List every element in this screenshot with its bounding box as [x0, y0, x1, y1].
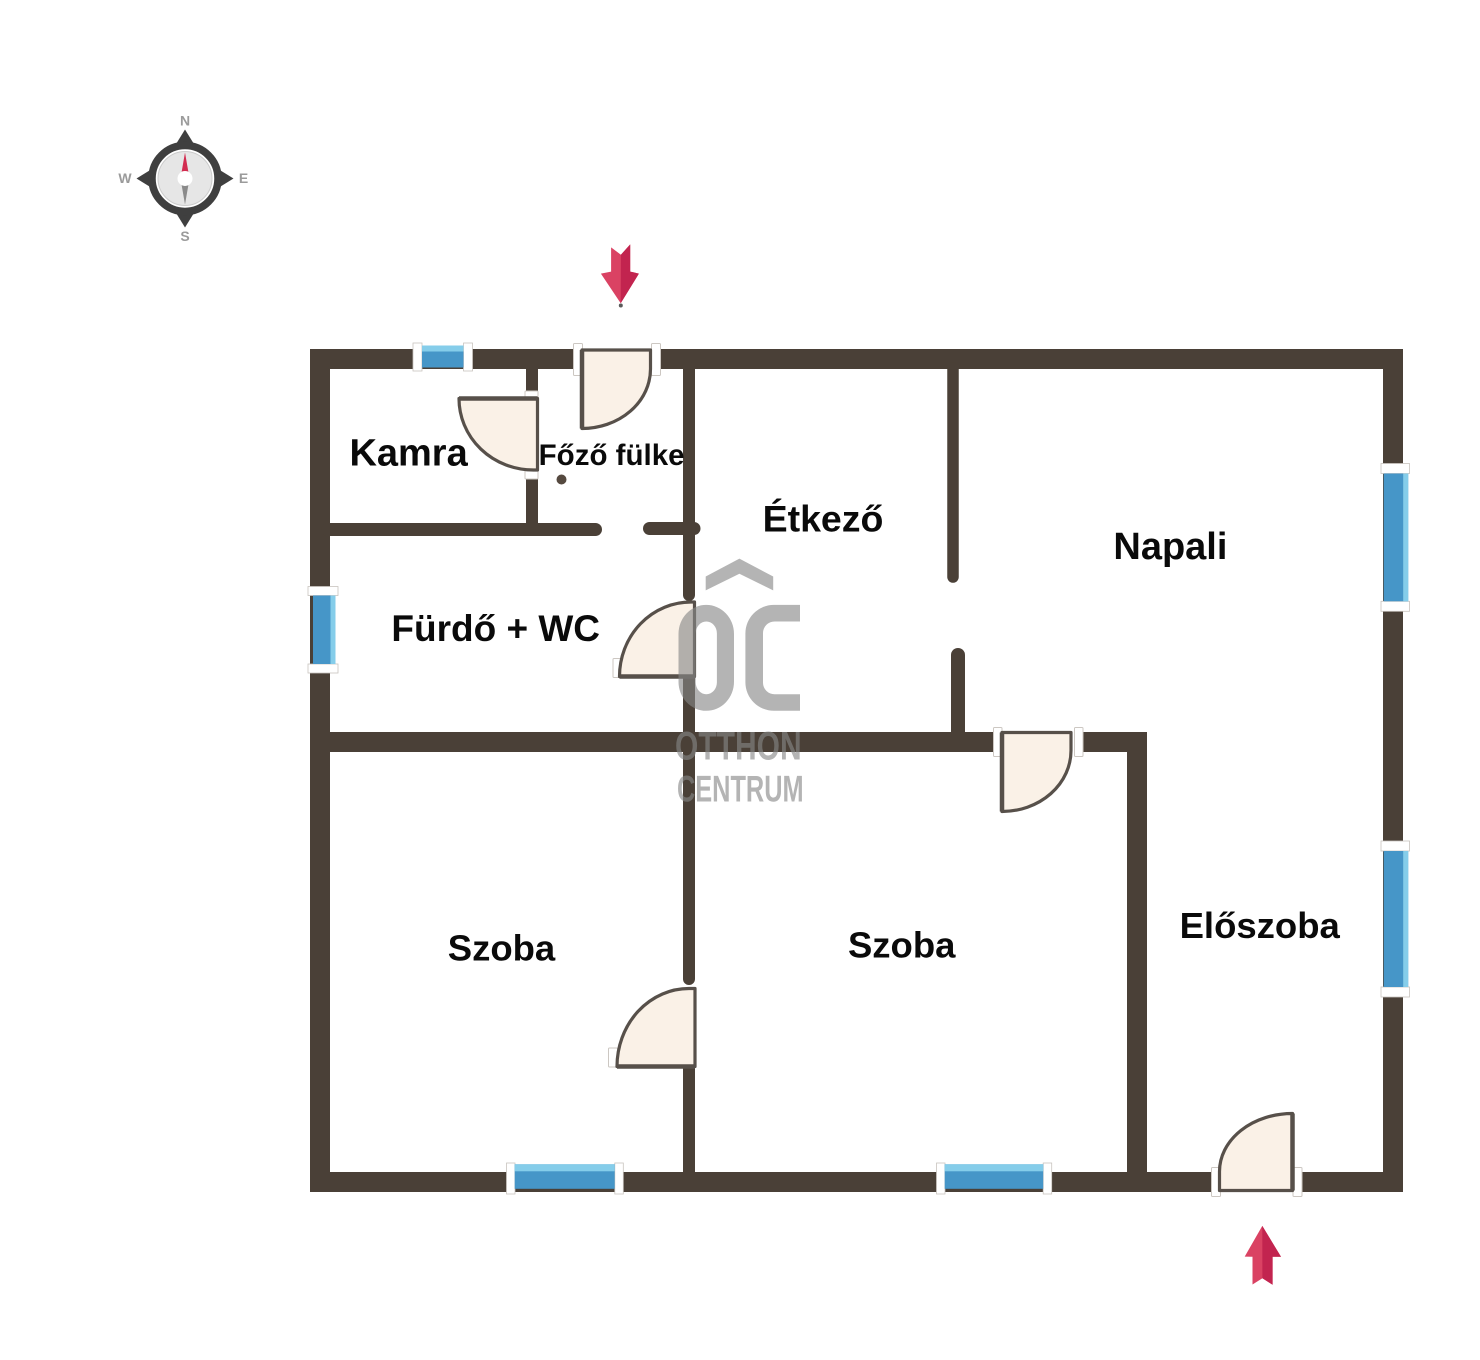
svg-text:Napali: Napali: [1113, 526, 1227, 568]
svg-text:Főző fülke: Főző fülke: [539, 439, 685, 472]
svg-text:Kamra: Kamra: [349, 433, 468, 475]
svg-text:Szoba: Szoba: [448, 928, 556, 969]
svg-text:Fürdő + WC: Fürdő + WC: [391, 608, 600, 649]
svg-text:S: S: [180, 228, 189, 244]
svg-text:W: W: [118, 170, 132, 186]
svg-text:Előszoba: Előszoba: [1180, 905, 1341, 946]
svg-text:E: E: [239, 170, 248, 186]
svg-text:Étkező: Étkező: [763, 498, 884, 540]
svg-text:CENTRUM: CENTRUM: [677, 768, 804, 810]
svg-text:Szoba: Szoba: [848, 925, 956, 966]
svg-text:N: N: [180, 113, 190, 129]
svg-text:OTTHON: OTTHON: [675, 724, 802, 768]
